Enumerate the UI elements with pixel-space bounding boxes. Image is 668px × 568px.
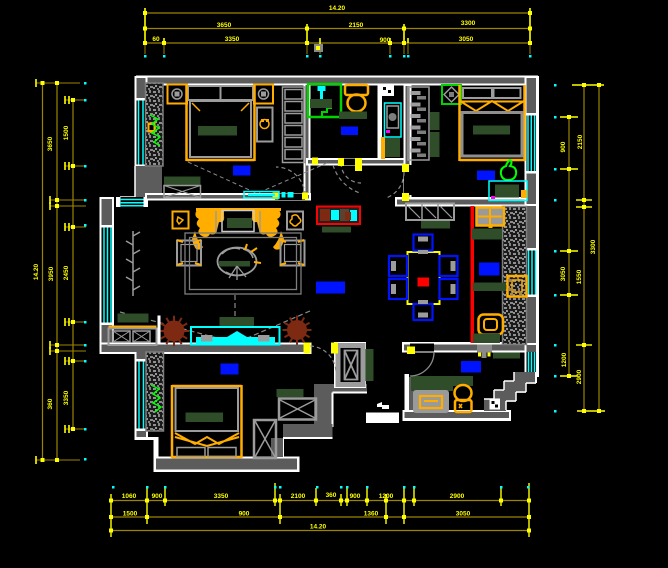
svg-text:2450: 2450: [63, 265, 70, 280]
svg-text:60: 60: [152, 36, 160, 43]
svg-text:900: 900: [350, 493, 361, 500]
svg-text:1500: 1500: [63, 125, 70, 140]
svg-text:2150: 2150: [577, 134, 584, 149]
svg-text:360: 360: [326, 492, 337, 499]
svg-text:1200: 1200: [379, 493, 394, 500]
svg-text:1200: 1200: [561, 352, 568, 367]
svg-text:900: 900: [560, 141, 567, 152]
svg-text:3650: 3650: [47, 136, 54, 151]
svg-text:900: 900: [380, 37, 391, 44]
svg-text:3350: 3350: [225, 36, 240, 43]
svg-text:1500: 1500: [123, 511, 138, 518]
svg-text:1360: 1360: [364, 511, 379, 518]
svg-text:14.20: 14.20: [310, 524, 327, 531]
svg-text:3050: 3050: [456, 511, 471, 518]
svg-text:14.20: 14.20: [33, 263, 40, 280]
svg-text:1550: 1550: [576, 269, 583, 284]
svg-text:1060: 1060: [122, 493, 137, 500]
svg-text:2100: 2100: [291, 493, 306, 500]
svg-text:3350: 3350: [63, 390, 70, 405]
svg-text:900: 900: [152, 493, 163, 500]
svg-text:360: 360: [47, 398, 54, 409]
svg-text:14.20: 14.20: [329, 5, 346, 12]
svg-text:3350: 3350: [214, 493, 229, 500]
svg-text:900: 900: [239, 511, 250, 518]
svg-text:2900: 2900: [450, 493, 465, 500]
svg-text:3050: 3050: [560, 266, 567, 281]
svg-text:3300: 3300: [461, 20, 476, 27]
svg-text:2150: 2150: [349, 22, 364, 29]
svg-text:3050: 3050: [459, 36, 474, 43]
svg-text:3950: 3950: [48, 266, 55, 281]
svg-text:2900: 2900: [576, 369, 583, 384]
svg-text:3650: 3650: [217, 22, 232, 29]
svg-text:3300: 3300: [590, 239, 597, 254]
